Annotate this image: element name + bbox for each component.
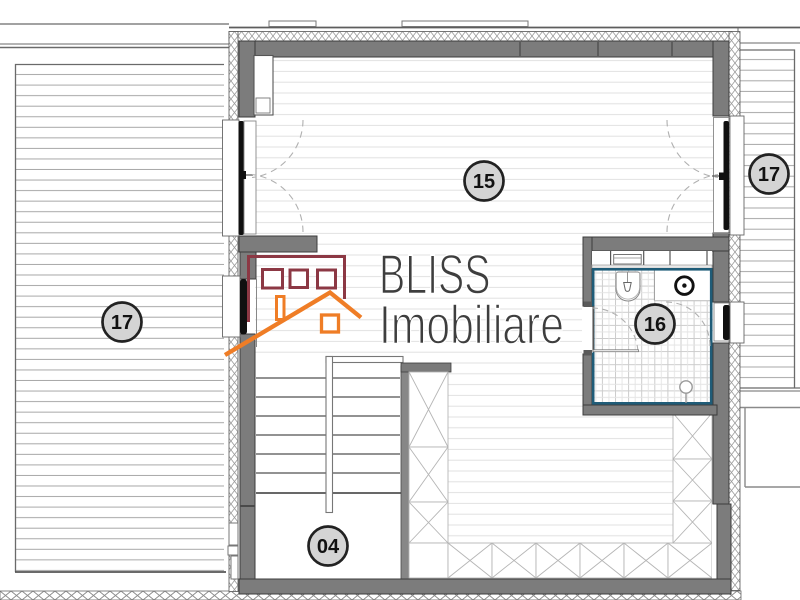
svg-text:15: 15 [473,171,495,193]
svg-text:16: 16 [644,314,666,336]
svg-text:Imobiliare: Imobiliare [379,294,564,356]
svg-text:17: 17 [111,312,133,334]
svg-text:17: 17 [758,164,780,186]
svg-text:04: 04 [317,536,340,558]
